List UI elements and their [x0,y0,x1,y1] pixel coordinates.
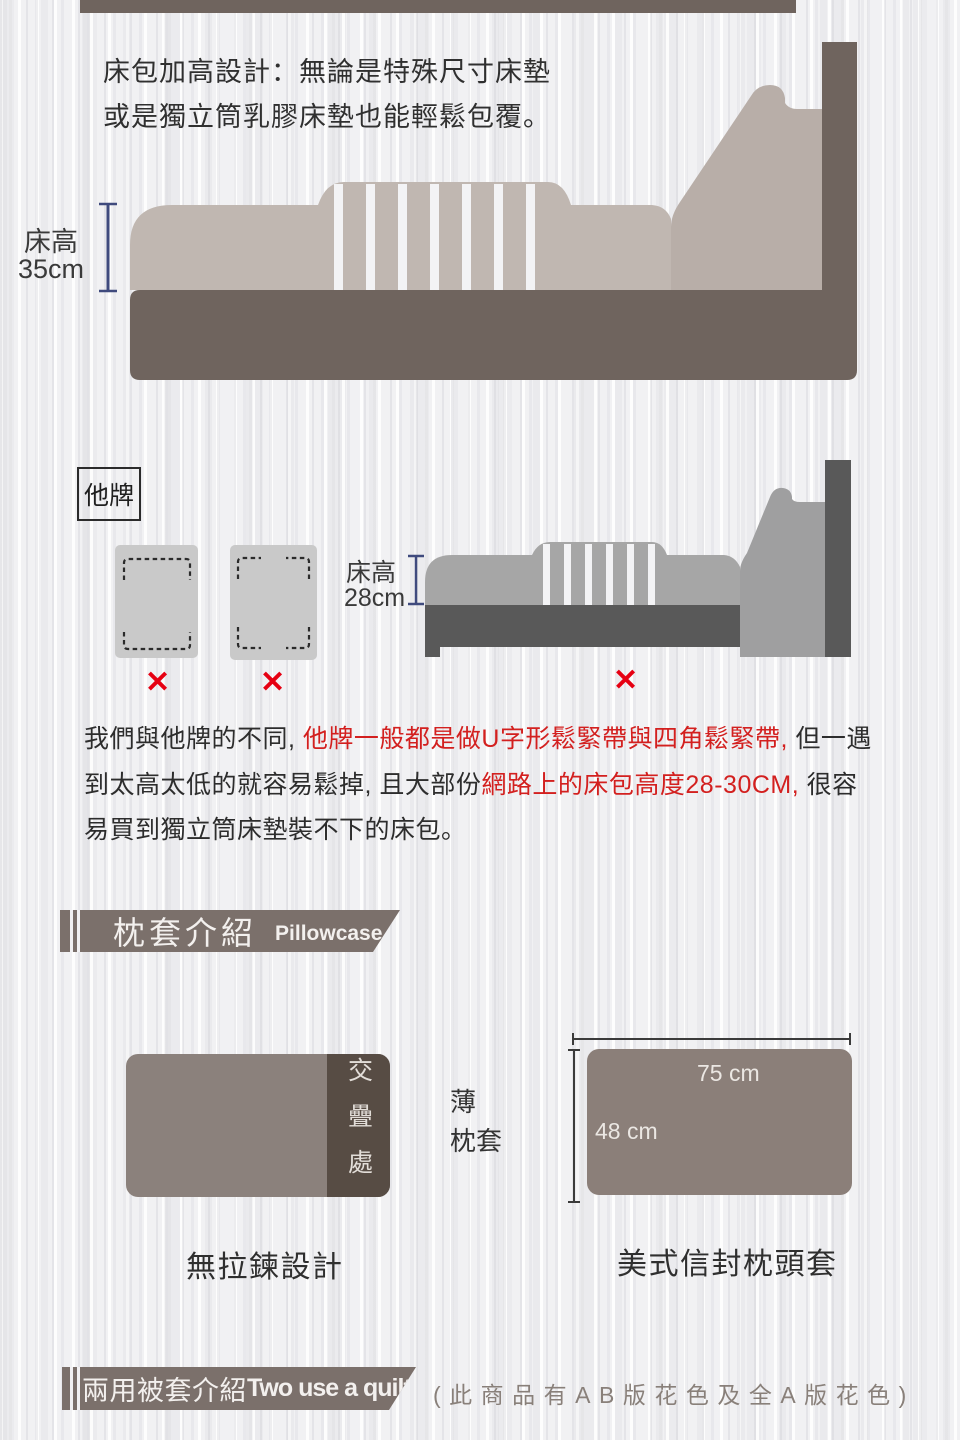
quilt-title-en: Two use a quilt [247,1374,411,1403]
bed1-pillow-section [671,85,822,290]
x-mark-1: ✕ [145,668,170,698]
quilt-title-zh: 兩用被套介紹 [82,1369,247,1408]
bed1-height-value: 35cm [18,254,84,285]
comparison-part4-red: 網路上的床包高度28-30CM, [481,771,799,799]
sheet-corner-elastic [230,545,317,660]
product-infographic-page: 床包加高設計：無論是特殊尺寸床墊或是獨立筒乳膠床墊也能輕鬆包覆。 床高 35cm [0,0,960,1440]
bed2-mattress-raised [532,542,667,605]
pillowcase-measure-line-group [568,1033,850,1202]
bed1-height-measure-line [99,204,117,291]
bed1-headboard [822,42,857,297]
bed-diagram-other [0,440,960,700]
banner-stripe [77,910,80,952]
comparison-paragraph: 我們與他牌的不同, 他牌一般都是做U字形鬆緊帶與四角鬆緊帶, 但一遇到太高太低的… [84,717,879,854]
x-mark-3: ✕ [613,666,638,696]
comparison-part1: 我們與他牌的不同, [84,725,303,753]
banner-stripe [70,1367,73,1410]
banner-stripe [77,1367,80,1410]
comparison-part2-red: 他牌一般都是做U字形鬆緊帶與四角鬆緊帶, [303,725,788,753]
envelope-pillowcase-caption: 美式信封枕頭套 [617,1239,838,1283]
bed2-pillow-section [740,488,825,657]
other-brand-badge: 他牌 [77,467,141,521]
quilt-note: (此商品有AB版花色及全A版花色) [433,1376,915,1410]
quilt-section-banner: 兩用被套介紹 Two use a quilt [62,1367,416,1410]
banner-stripe [70,910,73,952]
pillowcase-measure-lines [0,1020,960,1220]
intro-text: 床包加高設計：無論是特殊尺寸床墊或是獨立筒乳膠床墊也能輕鬆包覆。 [103,50,573,140]
pillowcase-title-zh: 枕套介紹 [113,908,257,954]
top-divider-bar [80,0,796,13]
bed2-height-measure-line [408,556,424,604]
no-zipper-caption: 無拉鍊設計 [186,1242,344,1286]
x-mark-2: ✕ [260,668,285,698]
sheet-u-elastic [115,545,198,658]
bed1-base [130,290,857,380]
bed2-height-value: 28cm [344,584,405,613]
pillowcase-section-banner: 枕套介紹 Pillowcase [60,910,400,952]
pillowcase-title-en: Pillowcase [275,922,382,946]
